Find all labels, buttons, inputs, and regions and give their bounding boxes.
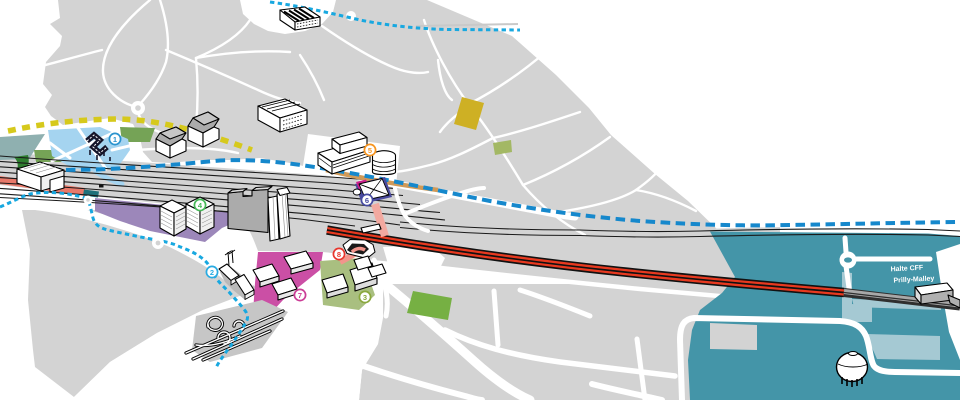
- svg-text:1: 1: [113, 135, 117, 144]
- svg-text:6: 6: [365, 196, 369, 205]
- svg-text:8: 8: [337, 250, 341, 259]
- svg-text:3: 3: [363, 293, 367, 302]
- svg-text:2: 2: [210, 268, 214, 277]
- svg-text:7: 7: [298, 291, 302, 300]
- svg-text:5: 5: [368, 146, 372, 155]
